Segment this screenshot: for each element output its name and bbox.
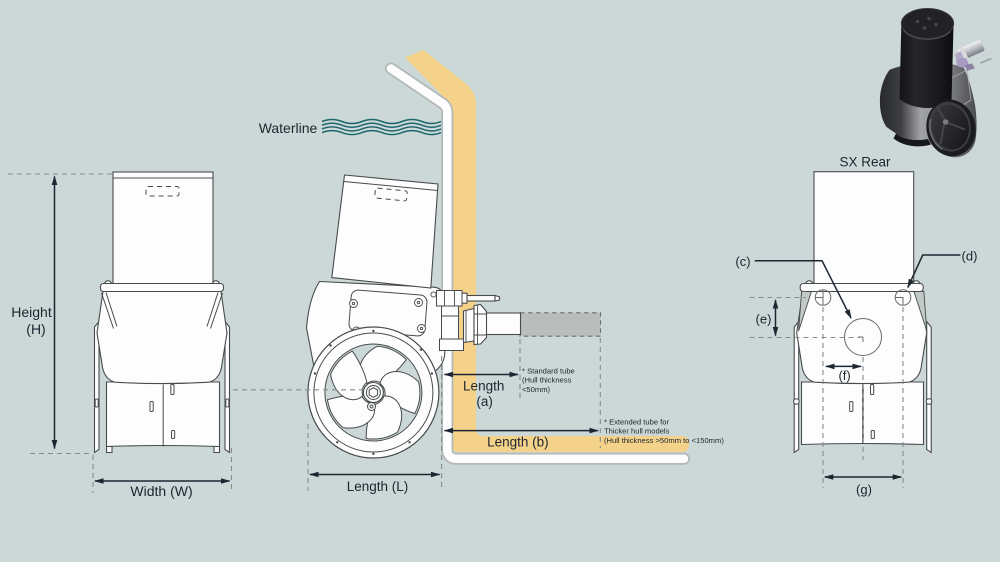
svg-text:* Extended tube for: * Extended tube for xyxy=(604,418,669,427)
svg-text:* Standard tube: * Standard tube xyxy=(522,367,575,376)
svg-text:Length (b): Length (b) xyxy=(487,435,549,450)
svg-text:(H): (H) xyxy=(26,321,45,337)
svg-text:Length: Length xyxy=(463,379,504,394)
svg-text:<50mm): <50mm) xyxy=(522,385,551,394)
svg-text:(Hull thickness >50mm to <150m: (Hull thickness >50mm to <150mm) xyxy=(604,436,724,445)
svg-text:(Hull thickness: (Hull thickness xyxy=(522,376,572,385)
svg-text:Height: Height xyxy=(11,304,52,320)
svg-text:(c): (c) xyxy=(735,254,750,269)
svg-text:(e): (e) xyxy=(756,312,772,327)
svg-text:(a): (a) xyxy=(476,394,493,409)
svg-text:(d): (d) xyxy=(962,249,978,264)
svg-text:Waterline: Waterline xyxy=(259,120,318,136)
svg-text:SX Rear: SX Rear xyxy=(839,155,891,170)
svg-text:Width (W): Width (W) xyxy=(130,483,192,499)
svg-text:(f): (f) xyxy=(838,368,850,383)
svg-text:Thicker hull models: Thicker hull models xyxy=(604,427,670,436)
svg-text:Length (L): Length (L) xyxy=(347,479,409,494)
svg-text:(g): (g) xyxy=(856,482,872,497)
